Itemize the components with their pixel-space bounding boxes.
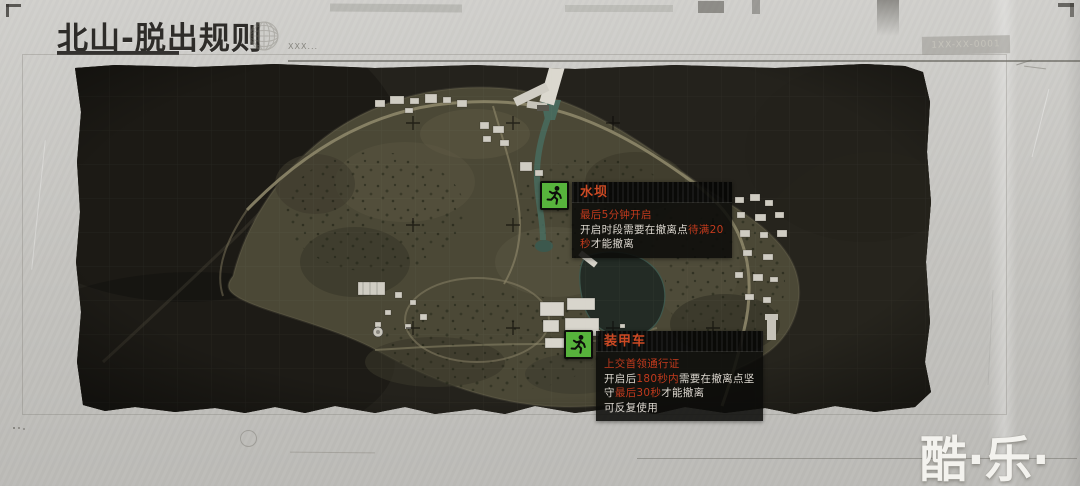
callout-armored-title: 装甲车	[596, 331, 763, 352]
callout-dam-title: 水坝	[572, 182, 732, 203]
paper-scribble	[1024, 66, 1046, 70]
dam-escape-run-icon	[540, 181, 569, 210]
armored-escape-run-icon	[564, 330, 593, 359]
paper-smudge	[752, 0, 760, 14]
corner-mark	[6, 4, 9, 17]
page-background: 北山-脱出规则 XXX... 1XX-XX-0001	[0, 0, 1080, 486]
corner-mark	[1070, 3, 1074, 17]
callout-armored-body: 上交首领通行证开启后180秒内需要在撤离点坚守最后30秒才能撤离可反复使用	[596, 352, 763, 421]
callout-dam-body: 最后5分钟开启开启时段需要在撤离点待满20秒才能撤离	[572, 203, 732, 258]
paper-rule	[290, 452, 375, 454]
callout-armored-vehicle: 装甲车 上交首领通行证开启后180秒内需要在撤离点坚守最后30秒才能撤离可反复使…	[596, 331, 763, 421]
paper-smudge	[698, 1, 724, 13]
watermark-logo: 酷·乐·米	[920, 419, 1080, 486]
paper-scratch	[1032, 89, 1050, 157]
doc-code-label: 1XX-XX-0001	[922, 35, 1010, 55]
paper-smudge	[330, 4, 462, 13]
map-image	[75, 62, 931, 414]
paper-smudge	[565, 5, 673, 12]
paper-marks	[13, 427, 15, 429]
callout-dam: 水坝 最后5分钟开启开启时段需要在撤离点待满20秒才能撤离	[572, 182, 732, 258]
globe-icon	[247, 19, 281, 53]
stamp-circle	[240, 430, 257, 447]
paper-smudge	[877, 0, 899, 36]
header-annotation: XXX...	[288, 42, 318, 51]
